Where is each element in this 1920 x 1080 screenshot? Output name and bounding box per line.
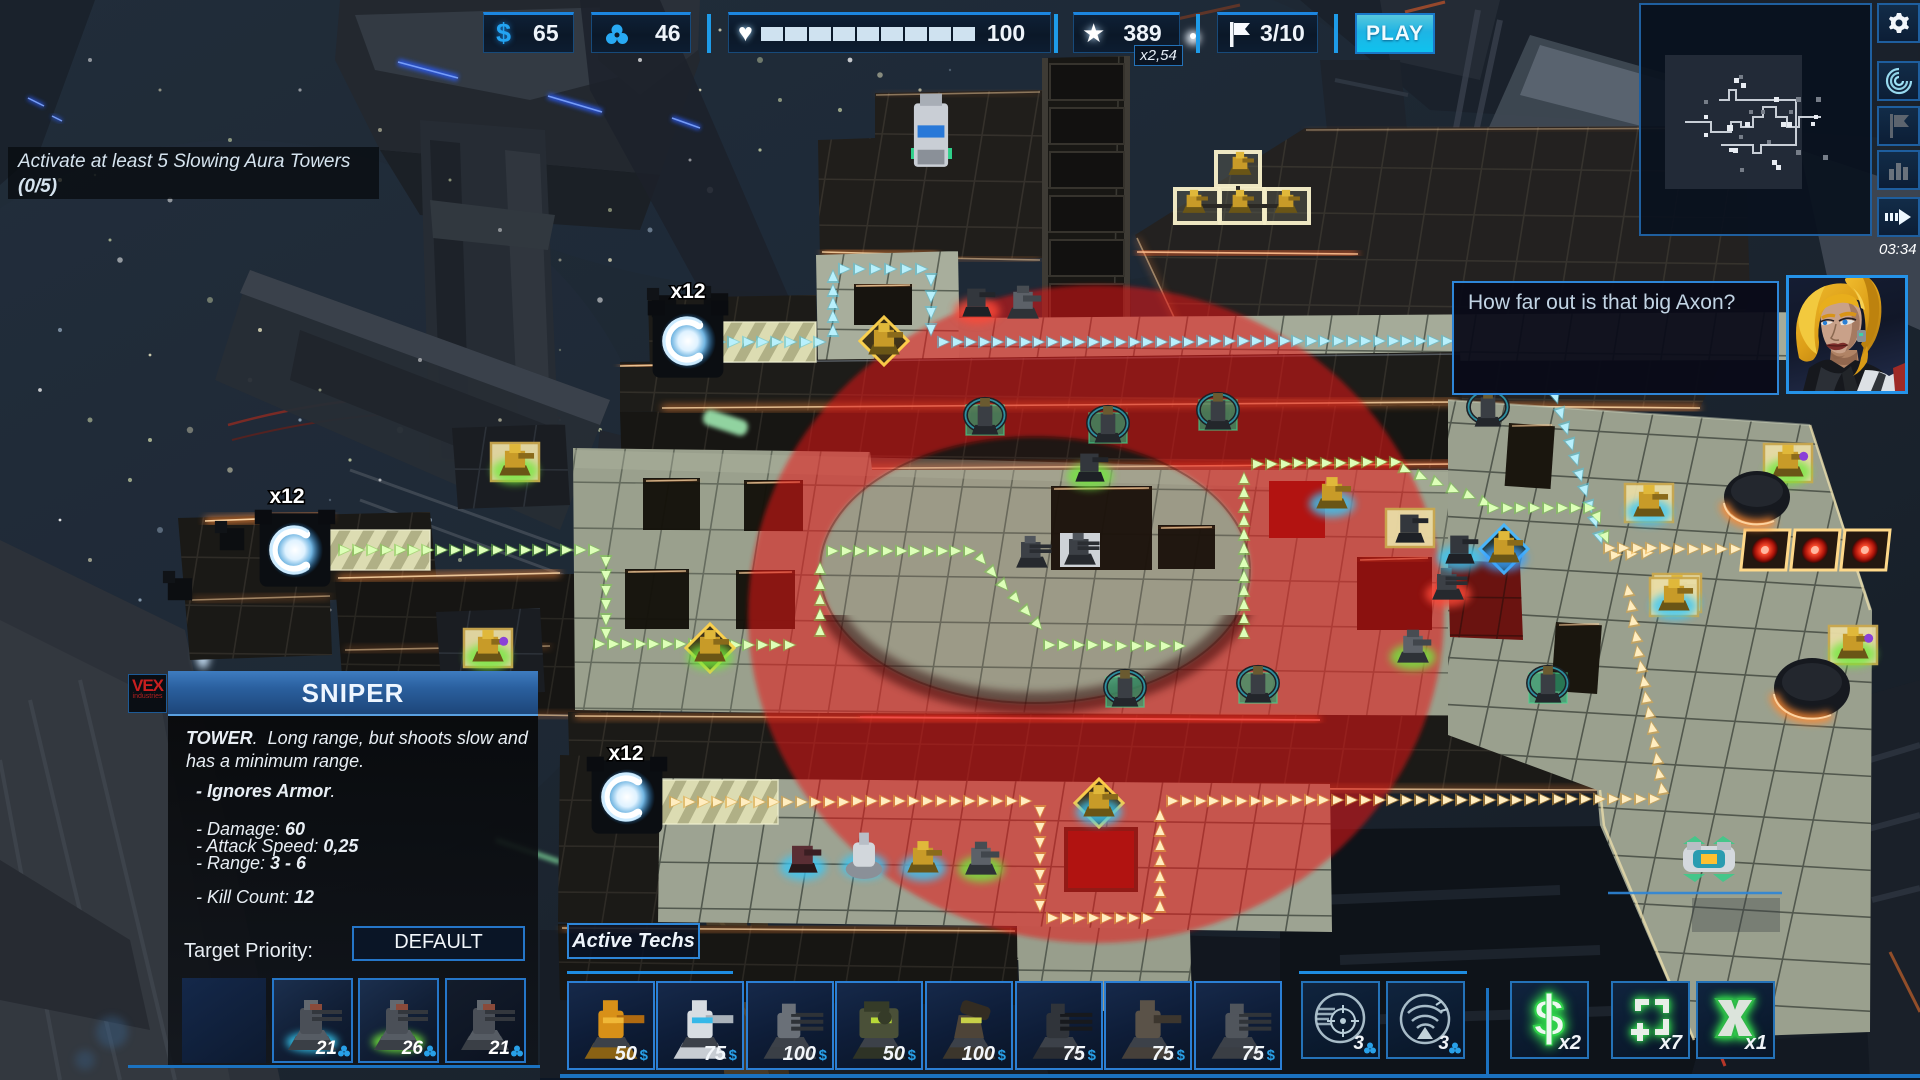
svg-text:x12: x12 xyxy=(269,485,304,508)
svg-text:x12: x12 xyxy=(608,742,643,765)
svg-text:x12: x12 xyxy=(670,280,705,303)
